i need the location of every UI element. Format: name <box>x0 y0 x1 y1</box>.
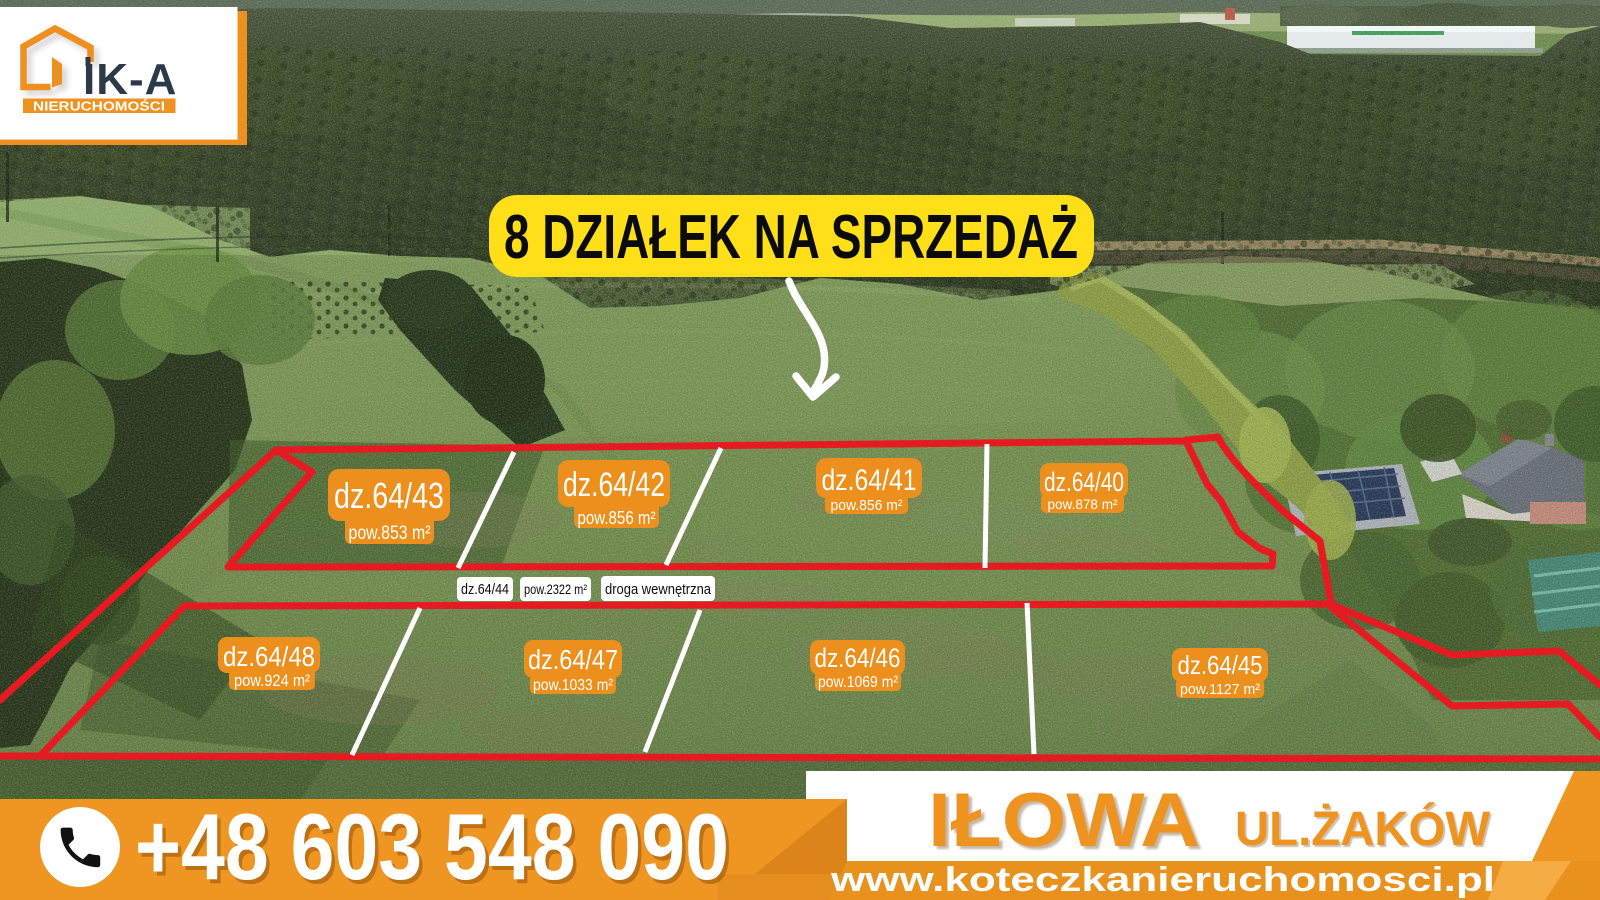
svg-text:NIERUCHOMOŚCI: NIERUCHOMOŚCI <box>33 99 165 114</box>
svg-text:dz.64/47: dz.64/47 <box>528 644 618 675</box>
svg-text:pow.1069 m²: pow.1069 m² <box>818 674 899 691</box>
svg-text:pow.2322 m²: pow.2322 m² <box>524 581 587 597</box>
svg-text:+48 603 548 090: +48 603 548 090 <box>135 794 729 899</box>
svg-text:pow.924 m²: pow.924 m² <box>234 671 310 690</box>
svg-text:pow.856 m²: pow.856 m² <box>578 508 656 528</box>
svg-text:pow.1127 m²: pow.1127 m² <box>1180 681 1260 698</box>
svg-text:8 DZIAŁEK NA SPRZEDAŻ: 8 DZIAŁEK NA SPRZEDAŻ <box>504 203 1078 272</box>
svg-text:dz.64/43: dz.64/43 <box>334 475 444 516</box>
svg-text:pow.853 m²: pow.853 m² <box>349 523 431 544</box>
svg-text:www.koteczkanieruchomosci.pl: www.koteczkanieruchomosci.pl <box>830 861 1495 899</box>
svg-text:UL.ŻAKÓW: UL.ŻAKÓW <box>1235 801 1491 856</box>
svg-text:dz.64/45: dz.64/45 <box>1178 650 1263 680</box>
svg-text:dz.64/48: dz.64/48 <box>223 641 315 672</box>
svg-text:dz.64/40: dz.64/40 <box>1044 467 1124 497</box>
svg-text:pow.878 m²: pow.878 m² <box>1048 496 1118 512</box>
svg-text:IŁOWA: IŁOWA <box>928 778 1200 863</box>
svg-text:pow.1033 m²: pow.1033 m² <box>533 677 614 694</box>
svg-text:droga wewnętrzna: droga wewnętrzna <box>605 581 712 598</box>
svg-text:IK-A: IK-A <box>83 55 177 104</box>
svg-text:dz.64/42: dz.64/42 <box>563 466 665 504</box>
svg-text:dz.64/46: dz.64/46 <box>815 643 901 673</box>
svg-text:dz.64/44: dz.64/44 <box>461 581 509 598</box>
svg-text:dz.64/41: dz.64/41 <box>822 464 917 497</box>
svg-text:pow.856 m²: pow.856 m² <box>831 497 903 514</box>
